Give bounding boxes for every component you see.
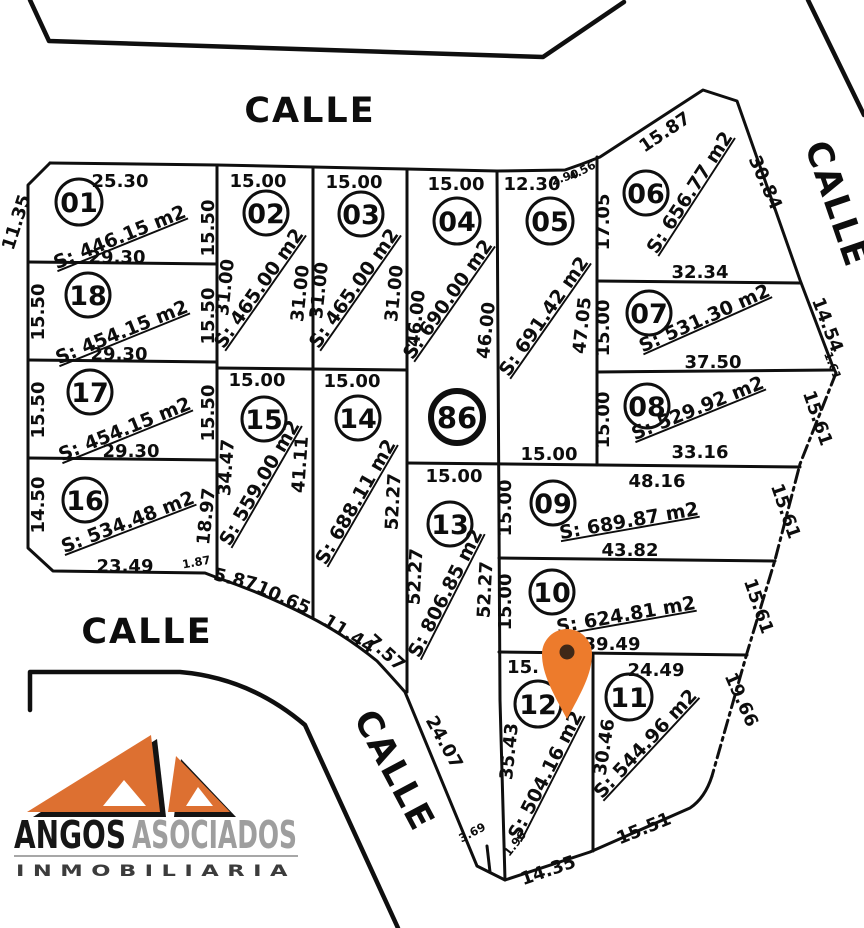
dim-lot09-bottom: 43.82 <box>602 540 659 561</box>
lot-03-number: 03 <box>342 200 380 231</box>
lot-08-marker: 08 <box>625 384 669 428</box>
lot-07-number: 07 <box>630 299 668 330</box>
dim-lot06-bottom: 32.34 <box>672 262 729 283</box>
dim-lot13-street: 24.07 <box>421 712 467 772</box>
lot-18-marker: 18 <box>66 273 110 317</box>
street-line-top <box>30 0 624 57</box>
dim-lot05-c2: 4.56 <box>566 158 598 184</box>
dim-lot01-left: 11.35 <box>0 192 36 253</box>
dim-lot15-top: 15.00 <box>229 370 286 391</box>
lot-15-number: 15 <box>245 405 283 436</box>
lot-05-number: 05 <box>531 207 569 238</box>
dim-lot03-right: 31.00 <box>381 264 408 323</box>
dim-lot04-top: 15.00 <box>428 174 485 195</box>
lot-07-marker: 07 <box>627 291 671 335</box>
street-label-right: CALLE <box>796 136 864 273</box>
lot-03-marker: 03 <box>339 192 383 236</box>
manzana-86-marker: 86 <box>431 391 483 443</box>
lot-01-number: 01 <box>60 188 98 219</box>
pin-dot <box>560 645 575 660</box>
dim-lot07-right: 14.54 <box>807 295 847 356</box>
dim-lot01-right: 15.50 <box>198 200 219 257</box>
lot-11-number: 11 <box>610 683 648 714</box>
lot-16-number: 16 <box>66 486 104 517</box>
dim-lot11-bottom: 15.51 <box>614 809 675 850</box>
dim-lot15-left: 34.47 <box>214 438 239 496</box>
lot-14-number: 14 <box>339 404 377 435</box>
dim-lot18-left: 15.50 <box>28 284 49 341</box>
dim-lot15-b2: 10.65 <box>253 577 314 619</box>
lot-05-marker: 05 <box>527 198 573 244</box>
dim-lot10-right: 15.61 <box>739 576 777 637</box>
brand-logo: ANGOS ASOCIADOS INMOBILIARIA <box>14 735 298 880</box>
dim-lot08-bottom: 33.16 <box>672 442 729 463</box>
dim-lot08-right: 15.61 <box>798 388 836 449</box>
dim-lot12-top: 15. <box>507 657 539 678</box>
street-label-top: CALLE <box>244 91 375 131</box>
dim-lot13-ext: 3.69 <box>456 820 488 846</box>
dim-lot08-left: 15.00 <box>593 392 614 449</box>
survey-tick <box>487 846 490 872</box>
dim-lot14-right: 52.27 <box>382 473 406 531</box>
dim-lot07-ext: 1.61 <box>821 350 844 382</box>
dim-lot11-top: 24.49 <box>628 660 685 681</box>
lot-10-marker: 10 <box>530 570 574 614</box>
lot-04-number: 04 <box>438 207 476 238</box>
dim-lot07-left: 15.00 <box>593 300 614 357</box>
dim-lot05-bottom: 15.00 <box>521 444 578 465</box>
street-label-left: CALLE <box>81 612 212 652</box>
dim-lot07-bottom: 37.50 <box>685 352 742 373</box>
lot-13-marker: 13 <box>428 502 472 546</box>
dim-lot16-left: 14.50 <box>28 477 49 534</box>
dim-lot09-right: 15.61 <box>766 481 804 542</box>
dim-lot10-bottom: 39.49 <box>584 634 641 655</box>
lot-13-number: 13 <box>431 510 469 541</box>
dim-lot09-left: 15.00 <box>495 480 516 537</box>
plat-map: 25.30 15.00 15.00 15.00 12.30 2.90 4.56 … <box>0 0 864 928</box>
lot-09-marker: 09 <box>531 481 575 525</box>
area-lot09: S: 689.87 m2 <box>558 498 701 544</box>
dim-lot16-ext: 1.87 <box>181 553 211 572</box>
dim-lot13-top: 15.00 <box>426 466 483 487</box>
lot-08-number: 08 <box>628 392 666 423</box>
lot-01-marker: 01 <box>56 179 102 225</box>
dim-lot02-top: 15.00 <box>230 171 287 192</box>
street-line-top-right <box>808 0 864 115</box>
dim-lot05-right: 47.05 <box>569 296 596 355</box>
dim-lot13-right: 52.27 <box>474 561 498 619</box>
dim-lot03-top: 15.00 <box>326 172 383 193</box>
dim-lot15-b1: 5.87 <box>211 564 259 595</box>
dim-lot06-left: 17.05 <box>593 194 614 251</box>
logo-text-angos: ANGOS <box>14 813 126 857</box>
lot-18-number: 18 <box>69 281 107 312</box>
dim-lot06-right: 30.84 <box>744 152 786 213</box>
logo-text-inmobiliaria: INMOBILIARIA <box>16 861 296 880</box>
lot-17-marker: 17 <box>68 370 112 414</box>
lot-02-marker: 02 <box>244 191 288 235</box>
logo-text-asociados: ASOCIADOS <box>132 813 297 857</box>
dim-lot16-bottom: 23.49 <box>97 556 154 577</box>
dim-lot17-right: 15.50 <box>198 385 219 442</box>
dim-lot17-left: 15.50 <box>28 382 49 439</box>
dim-lot13-left: 52.27 <box>404 548 428 606</box>
lot-12-number: 12 <box>519 690 557 721</box>
dim-lot01-top: 25.30 <box>92 171 149 192</box>
lot-14-marker: 14 <box>336 396 380 440</box>
lot-06-number: 06 <box>627 179 665 210</box>
lot-15-marker: 15 <box>242 397 286 441</box>
dim-lot12-bottom: 14.35 <box>518 852 579 890</box>
lot-06-marker: 06 <box>624 171 668 215</box>
lot-16-marker: 16 <box>63 478 107 522</box>
dim-lot04-right: 46.00 <box>473 301 500 360</box>
lot-04-marker: 04 <box>434 198 480 244</box>
dim-lot10-left: 15.00 <box>495 574 516 631</box>
lot-09-number: 09 <box>534 489 572 520</box>
lot-17-number: 17 <box>71 378 109 409</box>
manzana-number: 86 <box>437 401 477 435</box>
lot-02-number: 02 <box>247 199 285 230</box>
dim-lot09-top: 48.16 <box>629 471 686 492</box>
lot-10-number: 10 <box>533 578 571 609</box>
dim-lot14-top: 15.00 <box>324 371 381 392</box>
